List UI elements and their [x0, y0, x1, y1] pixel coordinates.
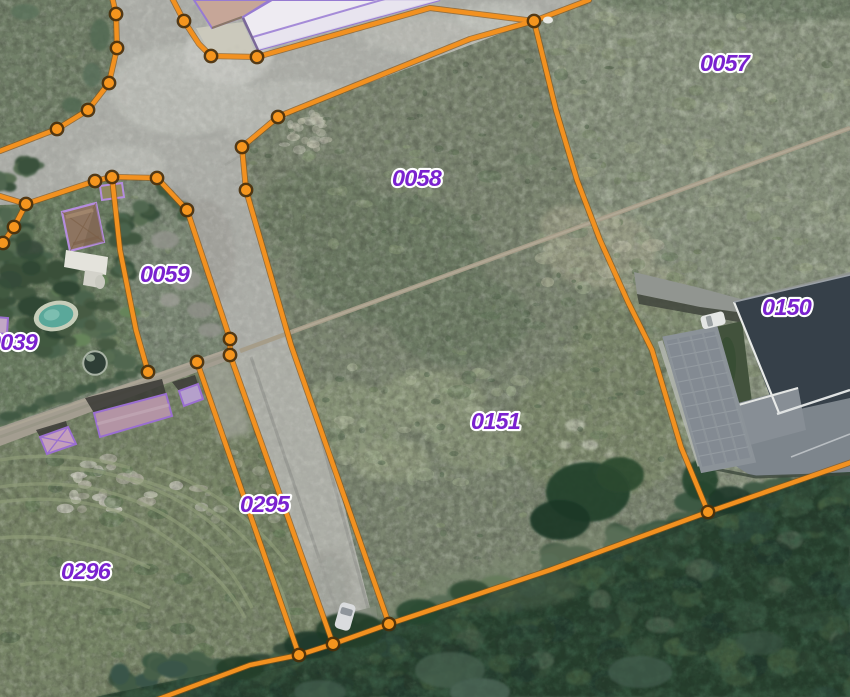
svg-text:0150: 0150	[762, 294, 812, 320]
svg-text:0057: 0057	[700, 50, 751, 76]
svg-text:0295: 0295	[240, 491, 291, 517]
svg-text:0039: 0039	[0, 329, 38, 355]
svg-text:0296: 0296	[61, 558, 112, 584]
svg-text:0058: 0058	[392, 165, 443, 191]
svg-text:0151: 0151	[471, 408, 520, 434]
svg-text:0059: 0059	[140, 261, 190, 287]
